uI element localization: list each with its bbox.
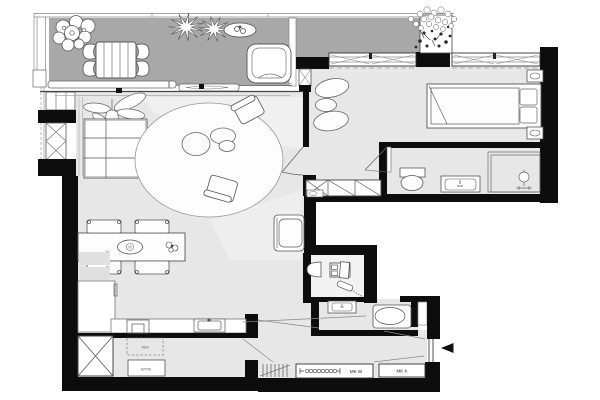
svg-text:WM: WM (141, 345, 148, 350)
svg-text:MK W: MK W (350, 369, 363, 374)
svg-text:MK K: MK K (396, 369, 407, 374)
svg-text:WTW: WTW (141, 367, 151, 372)
